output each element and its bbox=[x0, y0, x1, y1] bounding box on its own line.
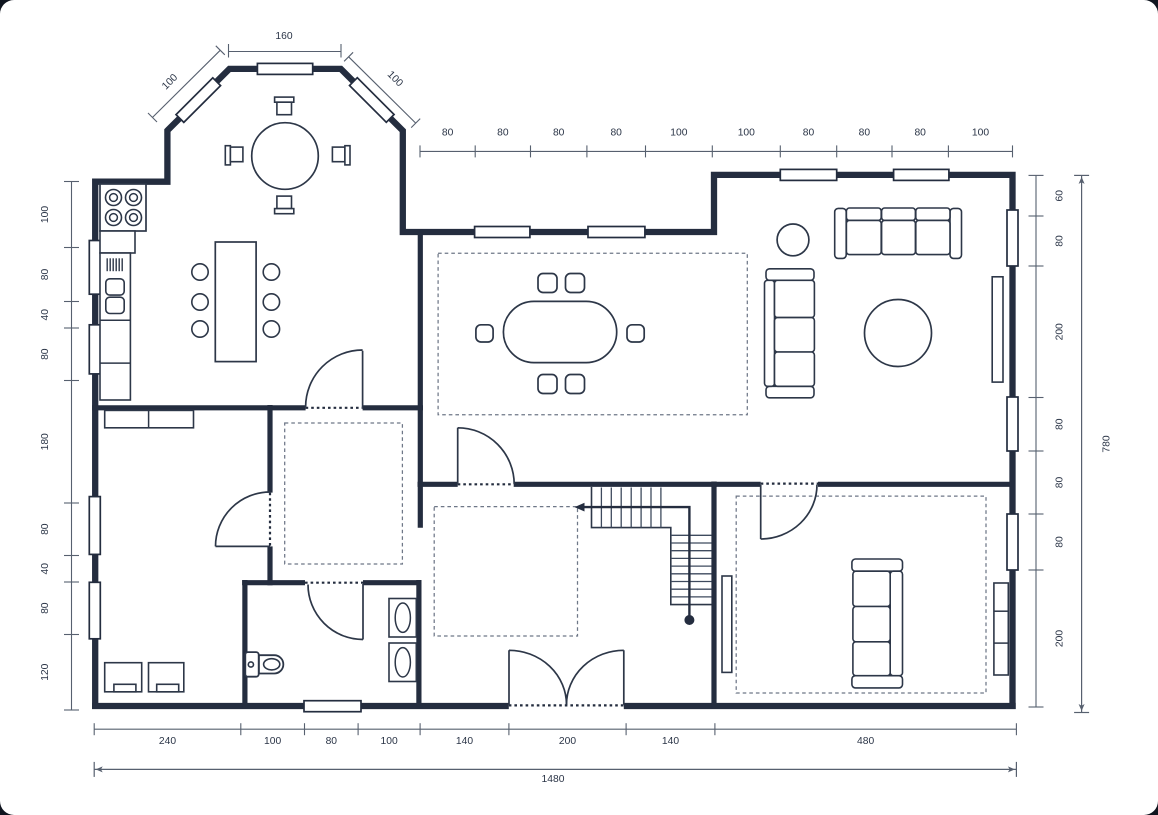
svg-text:80: 80 bbox=[803, 128, 815, 139]
svg-text:80: 80 bbox=[1055, 477, 1066, 489]
svg-text:160: 160 bbox=[275, 31, 292, 42]
svg-text:140: 140 bbox=[662, 736, 679, 747]
svg-text:180: 180 bbox=[40, 433, 51, 450]
svg-text:780: 780 bbox=[1101, 435, 1112, 452]
svg-text:100: 100 bbox=[738, 128, 755, 139]
svg-text:80: 80 bbox=[40, 523, 51, 535]
svg-text:100: 100 bbox=[264, 736, 281, 747]
svg-text:80: 80 bbox=[40, 348, 51, 360]
svg-text:100: 100 bbox=[40, 206, 51, 223]
svg-text:80: 80 bbox=[859, 128, 871, 139]
svg-text:200: 200 bbox=[1055, 630, 1066, 647]
svg-text:40: 40 bbox=[40, 563, 51, 575]
svg-text:1480: 1480 bbox=[542, 774, 565, 785]
svg-text:80: 80 bbox=[1055, 536, 1066, 548]
svg-text:80: 80 bbox=[553, 128, 565, 139]
svg-text:120: 120 bbox=[40, 663, 51, 680]
svg-text:60: 60 bbox=[1055, 190, 1066, 202]
svg-text:100: 100 bbox=[972, 128, 989, 139]
svg-text:80: 80 bbox=[326, 736, 338, 747]
svg-text:80: 80 bbox=[40, 602, 51, 614]
svg-text:80: 80 bbox=[610, 128, 622, 139]
svg-text:80: 80 bbox=[914, 128, 926, 139]
svg-text:80: 80 bbox=[40, 269, 51, 281]
svg-text:140: 140 bbox=[456, 736, 473, 747]
svg-text:100: 100 bbox=[670, 128, 687, 139]
svg-text:240: 240 bbox=[159, 736, 176, 747]
svg-text:80: 80 bbox=[1055, 418, 1066, 430]
svg-text:480: 480 bbox=[857, 736, 874, 747]
svg-text:80: 80 bbox=[442, 128, 454, 139]
svg-text:200: 200 bbox=[1055, 323, 1066, 340]
svg-text:100: 100 bbox=[381, 736, 398, 747]
svg-text:80: 80 bbox=[1055, 235, 1066, 247]
svg-text:200: 200 bbox=[559, 736, 576, 747]
svg-text:80: 80 bbox=[497, 128, 509, 139]
svg-text:40: 40 bbox=[40, 309, 51, 321]
